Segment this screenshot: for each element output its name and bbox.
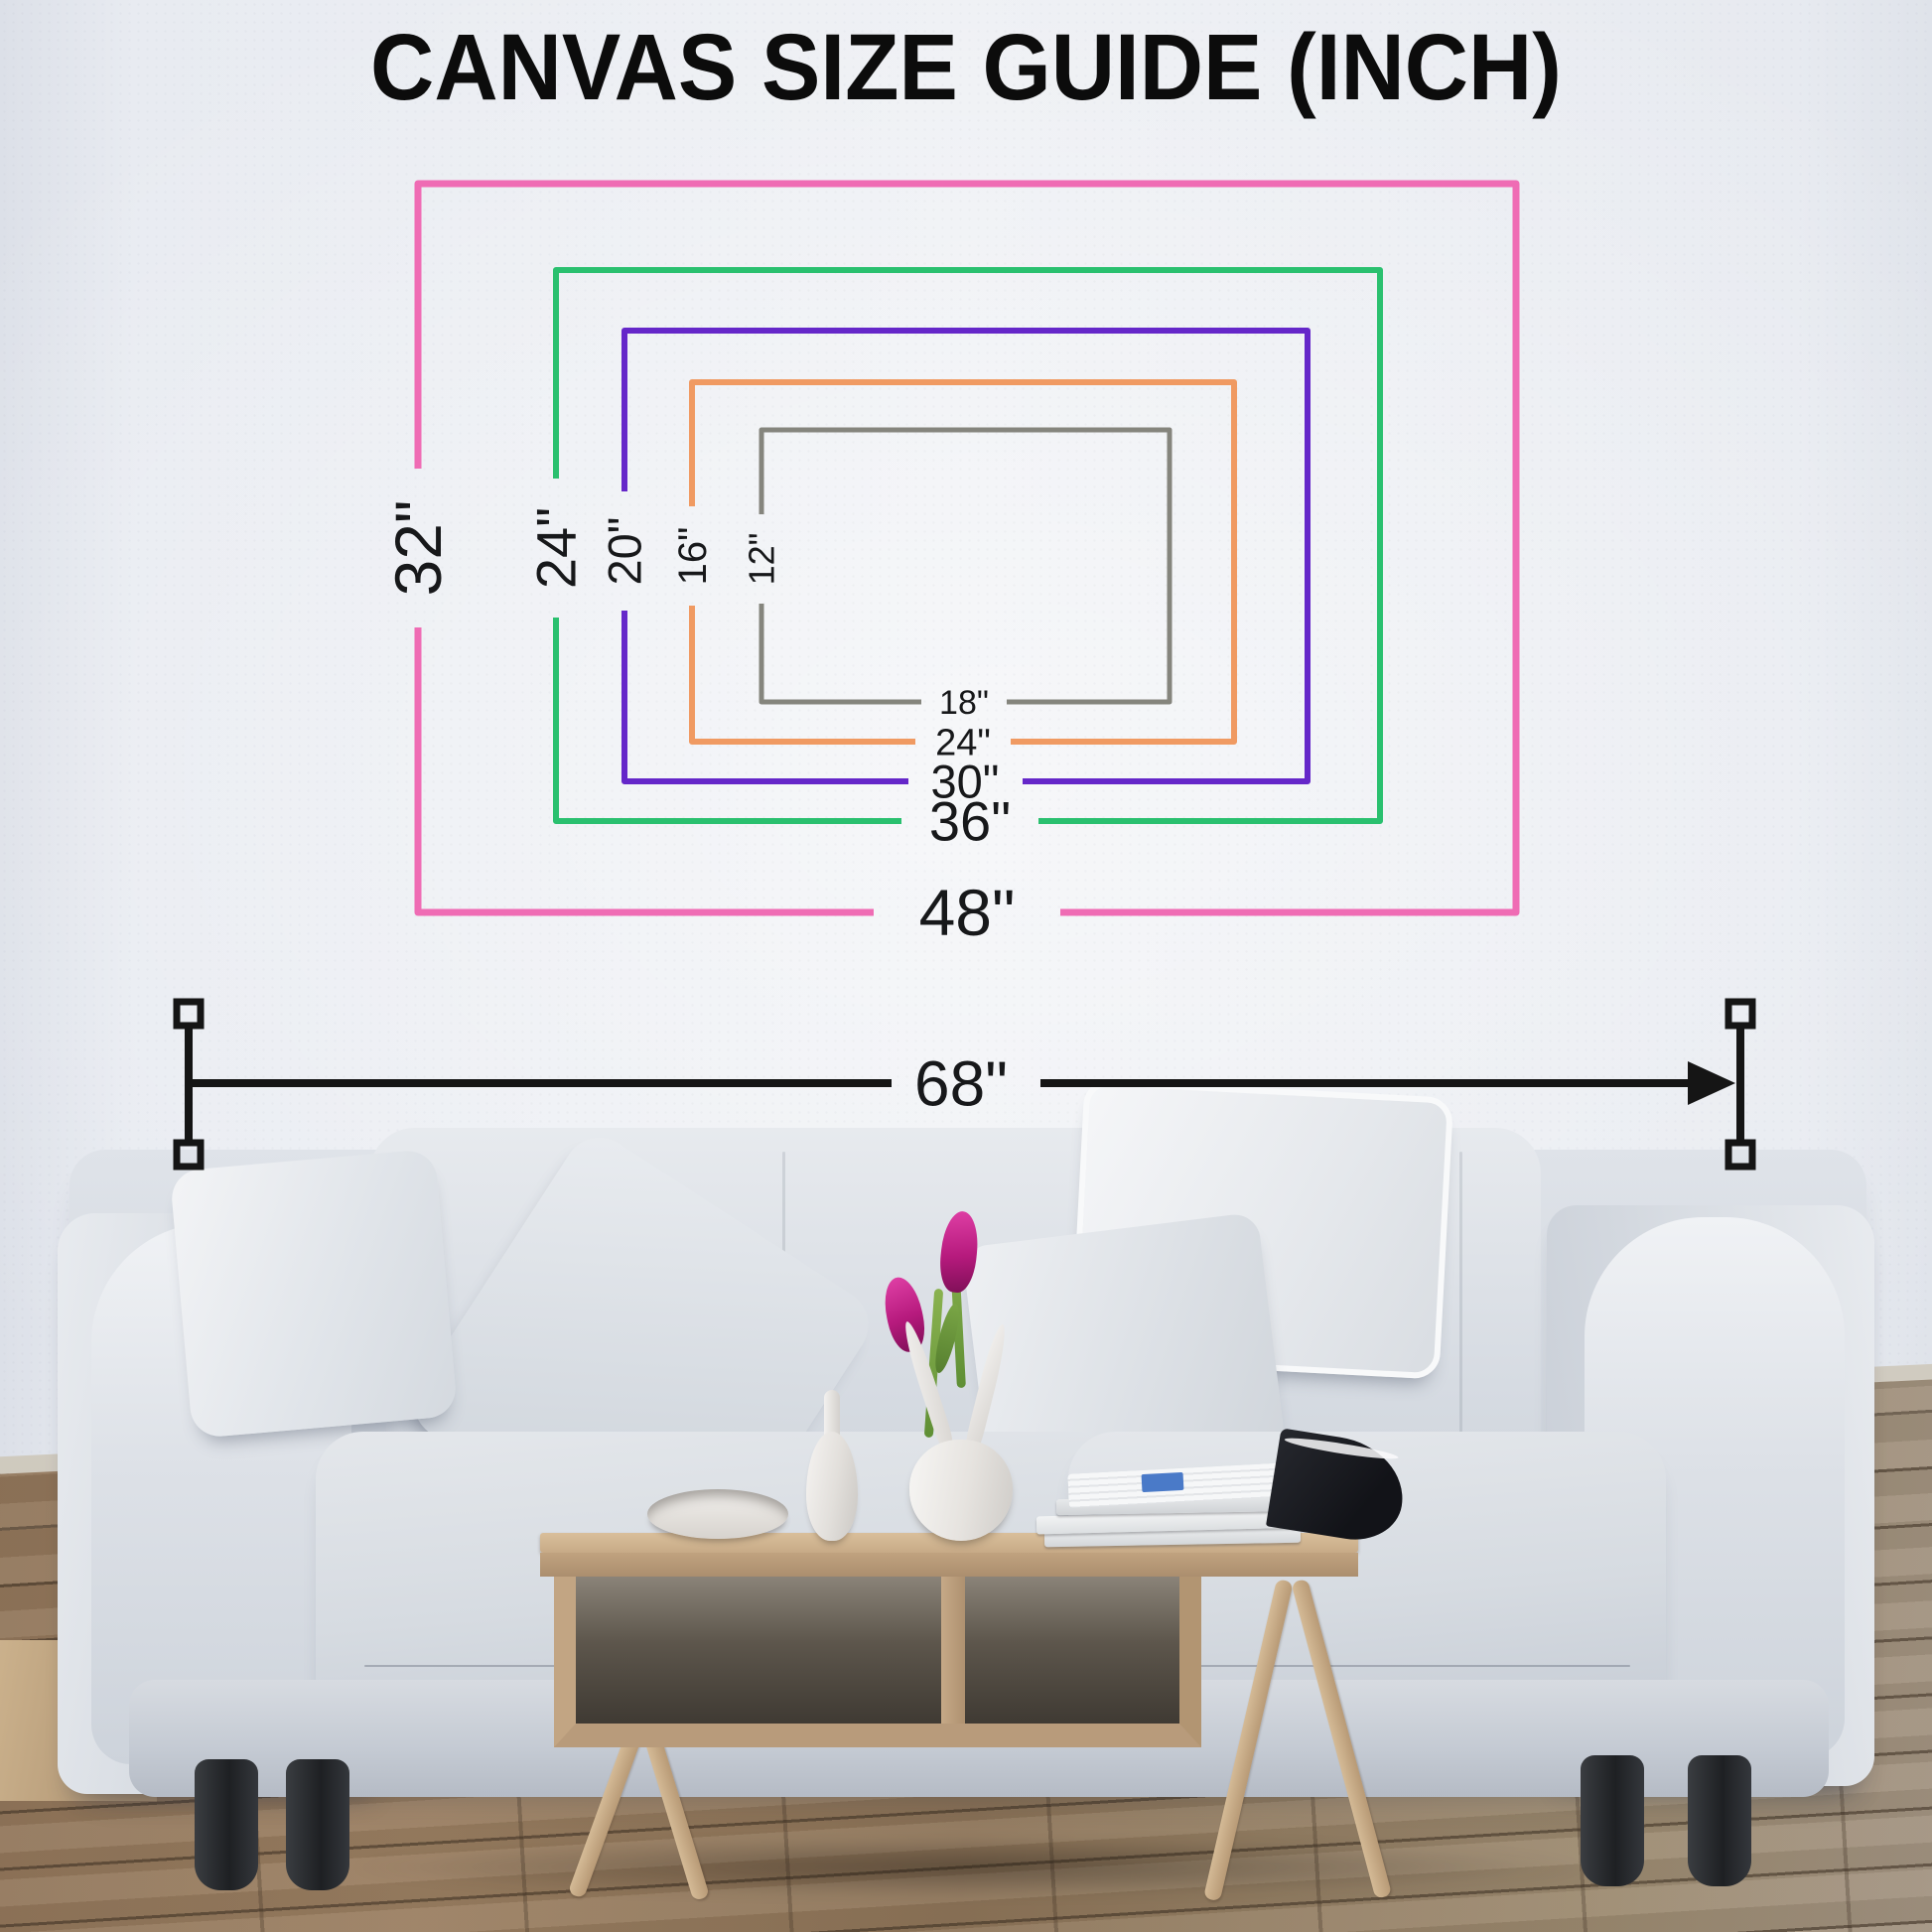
height-label-20: 20" [598, 517, 650, 586]
handle-square-icon [1728, 1002, 1752, 1026]
height-label-12: 12" [742, 533, 782, 586]
arrowhead-right-icon [1688, 1061, 1735, 1105]
height-label-32: 32" [381, 500, 455, 597]
sofa-width-label: 68" [914, 1047, 1008, 1119]
height-label-24: 24" [525, 507, 588, 589]
size-guide-overlay: 32" 24" 20" 16" 12" 48" 36" 30" 24" 18" … [0, 0, 1932, 1932]
canvas-size-guide-poster: 32" 24" 20" 16" 12" 48" 36" 30" 24" 18" … [0, 0, 1932, 1932]
page-title: CANVAS SIZE GUIDE (INCH) [0, 13, 1932, 121]
handle-square-icon [177, 1143, 201, 1167]
sofa-width-measurement: 68" [177, 1002, 1752, 1167]
height-label-16: 16" [671, 527, 715, 586]
width-label-24: 24" [935, 722, 991, 763]
width-label-18: 18" [939, 684, 989, 722]
handle-square-icon [1728, 1143, 1752, 1167]
handle-square-icon [177, 1002, 201, 1026]
canvas-outline-18x12 [761, 430, 1170, 702]
width-label-48: 48" [919, 876, 1016, 949]
